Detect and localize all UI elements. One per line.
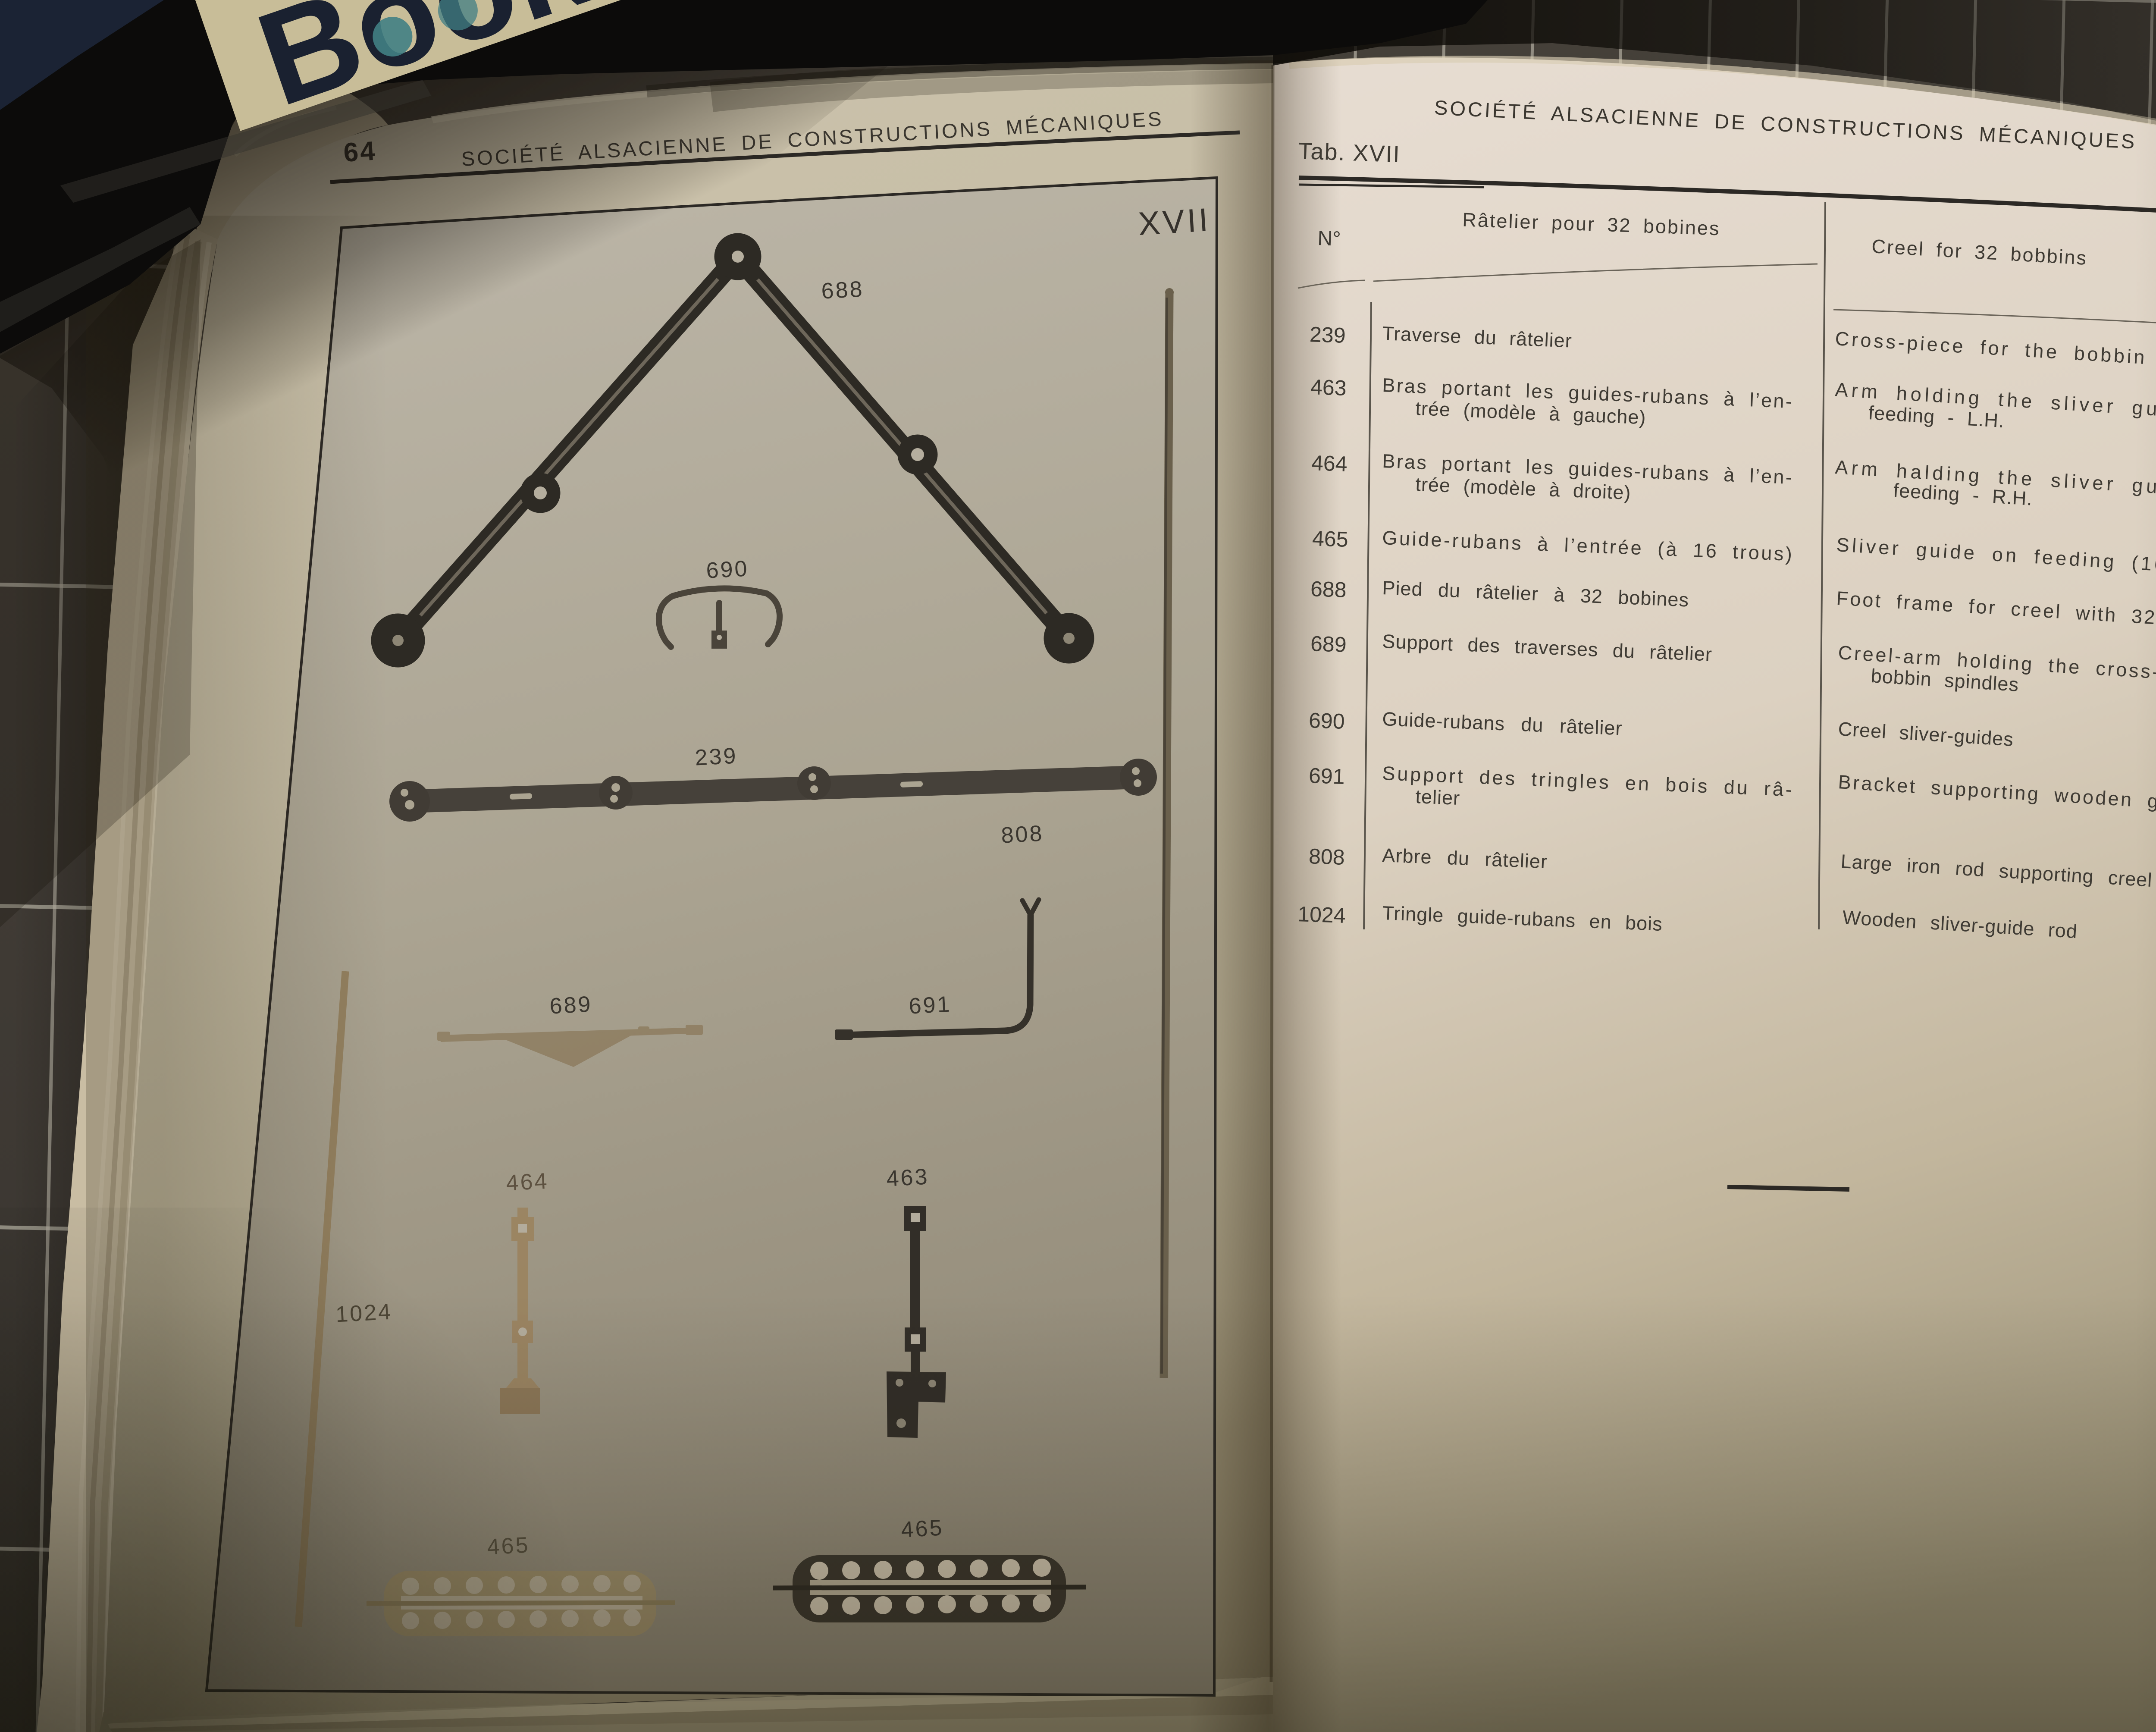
- svg-text:690: 690: [1308, 708, 1345, 734]
- svg-text:808: 808: [1308, 844, 1345, 869]
- svg-text:690: 690: [705, 556, 749, 583]
- svg-text:463: 463: [886, 1164, 930, 1191]
- svg-text:464: 464: [505, 1168, 549, 1195]
- svg-text:465: 465: [1312, 526, 1348, 552]
- svg-text:XVII: XVII: [1137, 201, 1212, 242]
- svg-text:689: 689: [549, 992, 593, 1019]
- svg-text:N°: N°: [1317, 227, 1341, 251]
- svg-text:691: 691: [1308, 763, 1345, 789]
- svg-text:689: 689: [1310, 631, 1347, 657]
- svg-text:808: 808: [1000, 821, 1044, 848]
- svg-text:688: 688: [1310, 577, 1347, 602]
- svg-text:463: 463: [1310, 375, 1347, 400]
- svg-text:telier: telier: [1415, 785, 1461, 809]
- svg-text:464: 464: [1311, 451, 1347, 476]
- svg-text:691: 691: [908, 992, 952, 1019]
- svg-text:239: 239: [694, 743, 738, 770]
- svg-text:Tab. XVII: Tab. XVII: [1298, 138, 1401, 167]
- svg-text:239: 239: [1309, 322, 1346, 348]
- svg-text:1024: 1024: [1297, 902, 1346, 928]
- svg-text:688: 688: [821, 276, 865, 304]
